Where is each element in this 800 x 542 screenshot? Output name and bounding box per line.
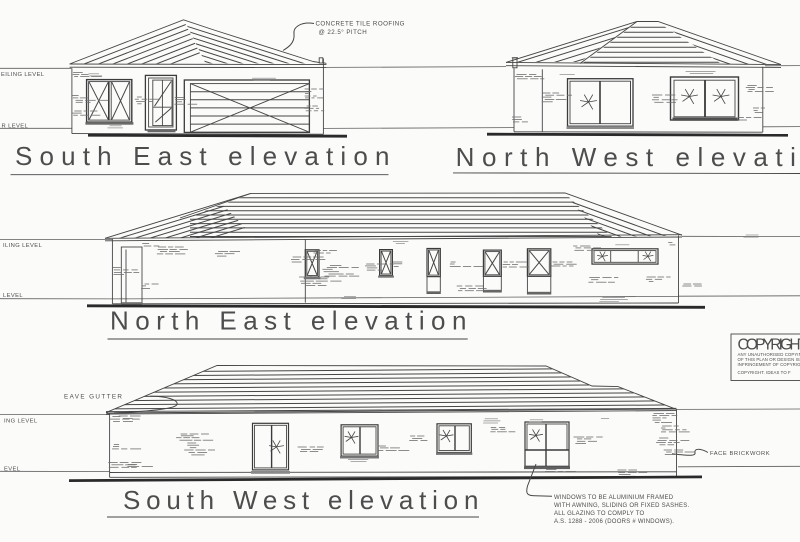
svg-text:A.S. 1288 - 2006 (DOORS # WIND: A.S. 1288 - 2006 (DOORS # WINDOWS). [554, 519, 674, 525]
svg-text:@ 22.5° PITCH: @ 22.5° PITCH [319, 29, 368, 36]
svg-text:South West elevation: South West elevation [123, 485, 484, 515]
svg-text:North East elevation: North East elevation [110, 306, 472, 336]
svg-text:WINDOWS TO BE ALUMINIUM FRAMED: WINDOWS TO BE ALUMINIUM FRAMED [554, 495, 674, 501]
svg-text:WITH AWNING, SLIDING OR FIXED: WITH AWNING, SLIDING OR FIXED SASHES. [554, 503, 689, 509]
svg-text:South East elevation: South East elevation [15, 141, 395, 171]
svg-text:R LEVEL: R LEVEL [2, 123, 29, 129]
svg-text:CONCRETE TILE ROOFING: CONCRETE TILE ROOFING [316, 21, 405, 28]
svg-text:LEVEL: LEVEL [3, 293, 23, 299]
svg-text:EILING LEVEL: EILING LEVEL [1, 72, 45, 78]
svg-text:ALL GLAZING TO COMPLY TO: ALL GLAZING TO COMPLY TO [554, 511, 645, 517]
svg-text:INFRINGEMENT OF COPYRIGHT: INFRINGEMENT OF COPYRIGHT [738, 362, 800, 367]
svg-text:FACE BRICKWORK: FACE BRICKWORK [710, 451, 770, 457]
svg-text:EAVE GUTTER: EAVE GUTTER [64, 393, 123, 400]
svg-text:COPYRIGHT. IDEAS TO F: COPYRIGHT. IDEAS TO F [738, 370, 792, 375]
svg-text:EVEL: EVEL [4, 466, 21, 472]
svg-text:ILING LEVEL: ILING LEVEL [3, 243, 43, 249]
svg-text:North West elevation: North West elevation [456, 142, 800, 172]
svg-text:ING LEVEL: ING LEVEL [4, 418, 38, 424]
